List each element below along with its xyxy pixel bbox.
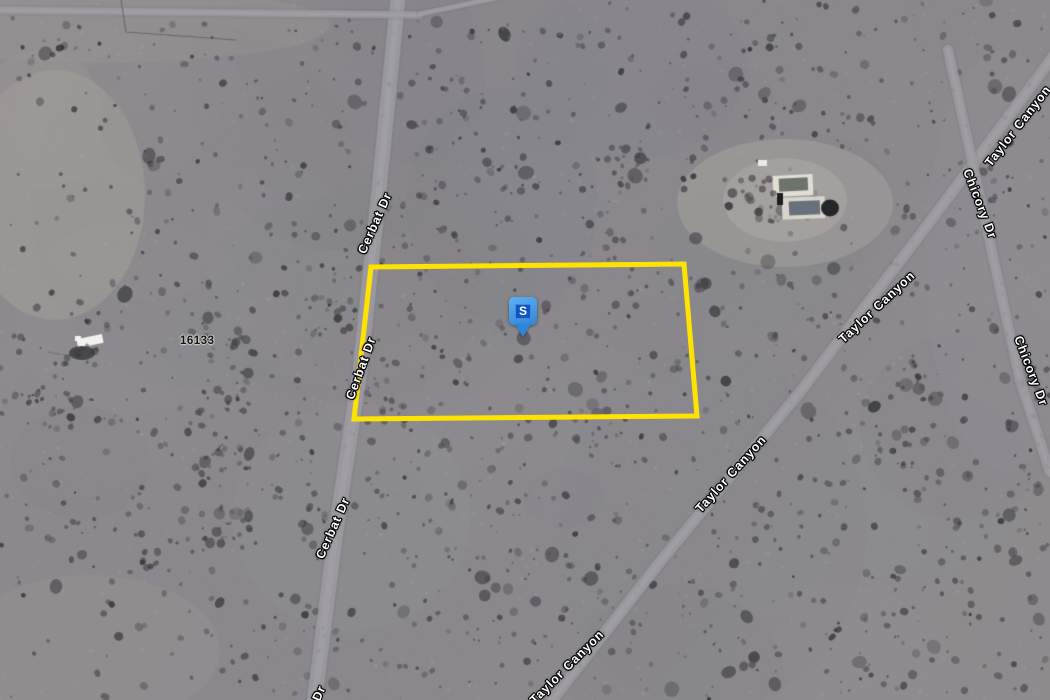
marker-pin-tail-icon bbox=[515, 324, 531, 337]
marker-letter: S bbox=[519, 305, 527, 317]
satellite-map: Cerbat DrCerbat DrCerbat DrCerbat DrTayl… bbox=[0, 0, 1050, 700]
terrain-canvas[interactable] bbox=[0, 0, 1050, 700]
parcel-number-label: 16133 bbox=[180, 335, 214, 347]
property-marker[interactable]: S bbox=[509, 297, 537, 337]
marker-head: S bbox=[509, 297, 537, 325]
marker-inner-square: S bbox=[515, 304, 531, 319]
